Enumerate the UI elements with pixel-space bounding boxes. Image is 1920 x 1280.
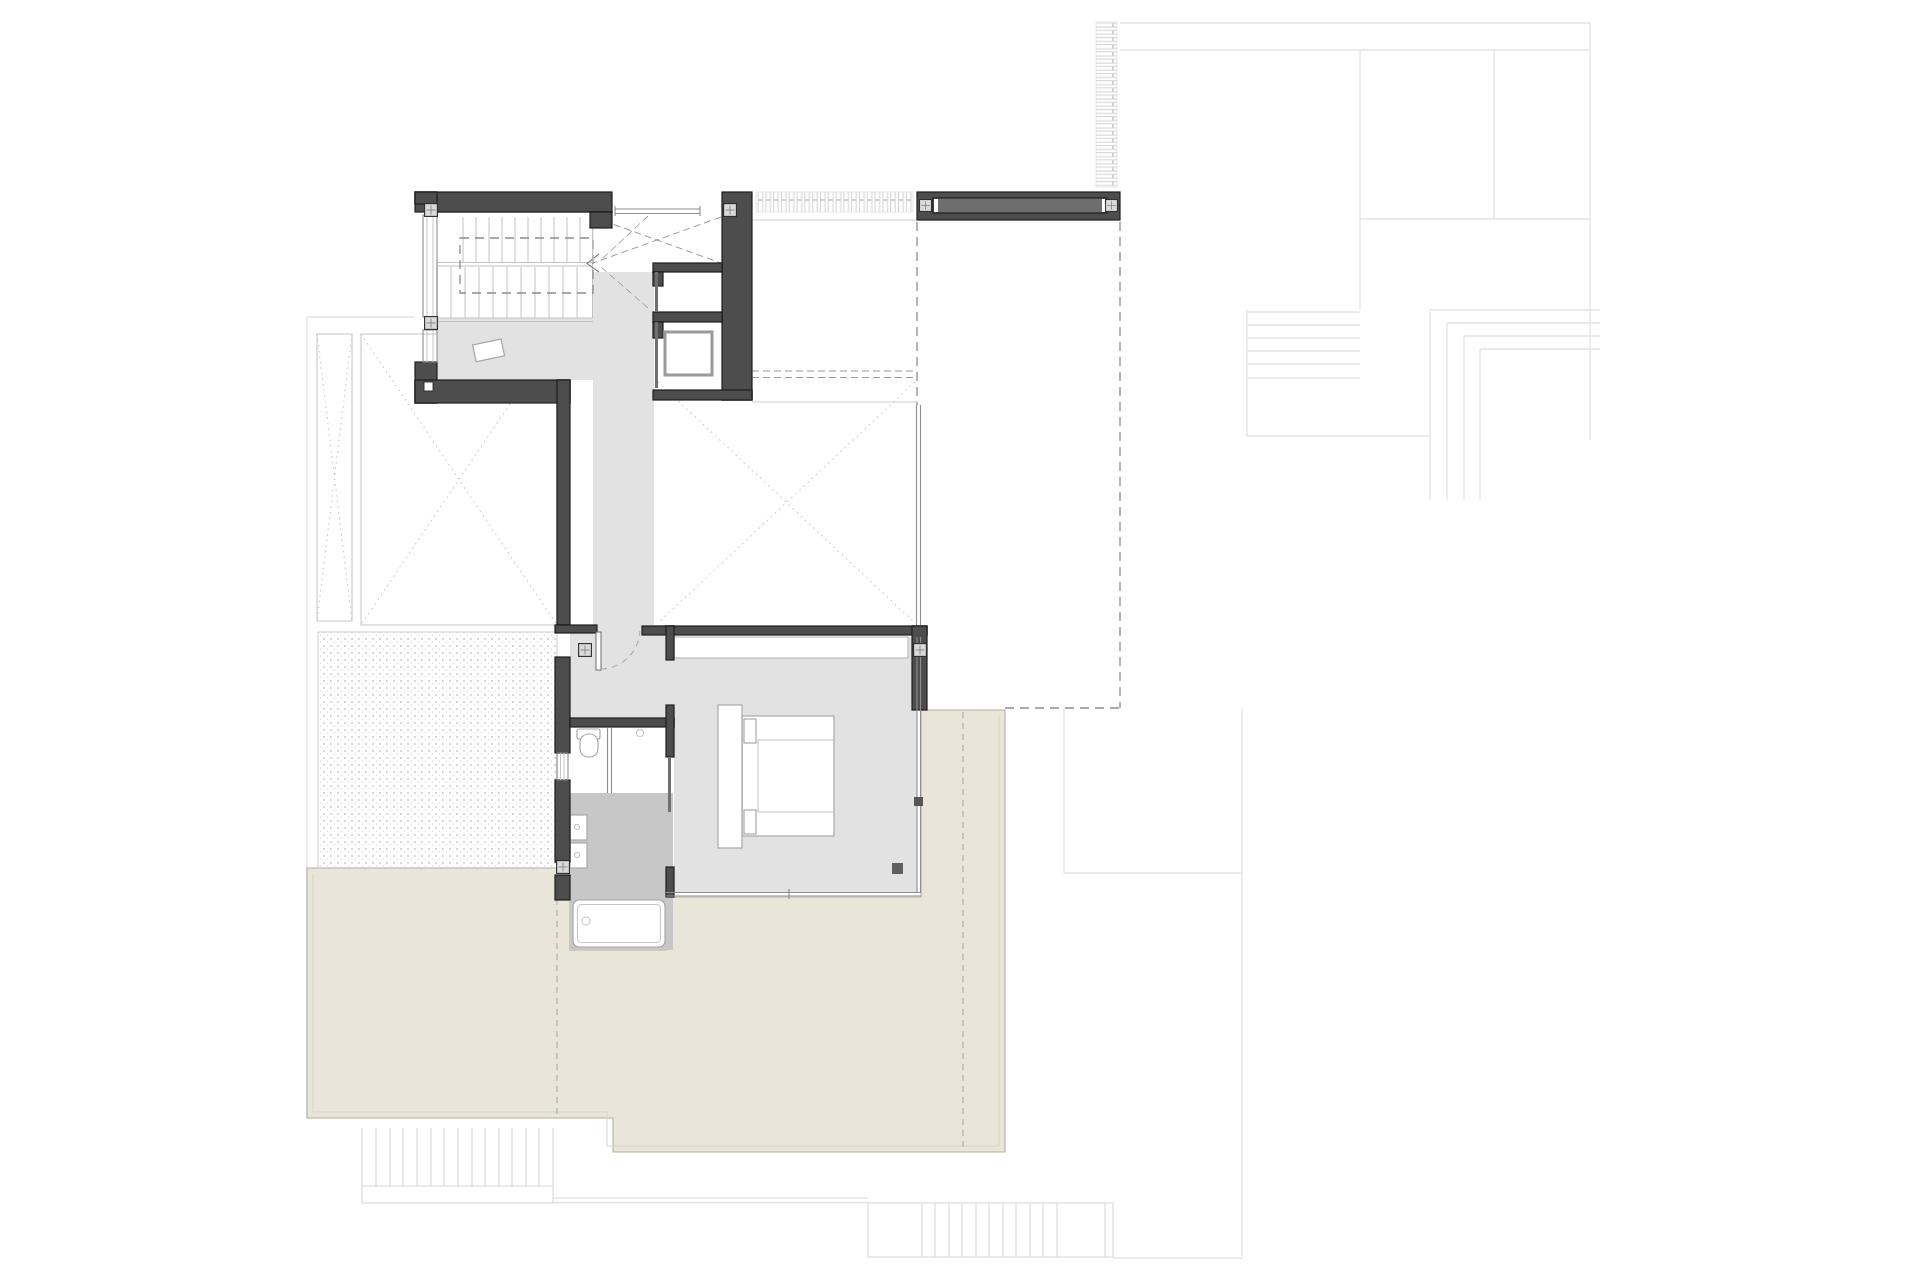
wall-niche	[424, 382, 433, 391]
door-head-wall	[555, 625, 597, 633]
floor-outlet	[892, 863, 903, 874]
corridor-west-wall	[557, 380, 570, 625]
stair-landing-strip	[362, 1186, 553, 1203]
east-core-wall	[722, 192, 752, 400]
wardrobe	[674, 637, 908, 658]
bathroom-east-wall	[666, 705, 674, 757]
entry-slat-strip	[1096, 22, 1117, 187]
bathroom-north-wall	[570, 718, 674, 727]
narrow-void-room	[317, 334, 352, 621]
hidden-beam-dashed	[752, 371, 917, 378]
underlay-lower-terrace	[1064, 708, 1242, 1258]
bed-headboard	[718, 705, 742, 848]
gravel-court	[318, 632, 557, 868]
hall-floor	[570, 625, 674, 718]
void-room-window	[917, 405, 921, 625]
lower-terrace-edge	[553, 1198, 868, 1203]
column-marker	[920, 200, 932, 212]
stair-north-window	[615, 206, 700, 216]
glazing-mullion	[914, 797, 923, 806]
underlay-steps-right	[1247, 312, 1360, 378]
column-marker	[425, 317, 438, 330]
gravel-stipple-area	[318, 632, 557, 868]
toilet	[577, 729, 600, 757]
column-marker	[724, 204, 737, 217]
bed-pillow	[744, 719, 756, 743]
skylight-shaft	[665, 332, 712, 375]
bedroom-north-wall	[642, 626, 927, 635]
pergola-slat-strip	[756, 192, 913, 212]
louver-strips	[756, 22, 1117, 212]
hidden-outline-dashed	[917, 222, 1120, 708]
bedroom-corner-column-wall	[912, 626, 927, 710]
bathroom-west-wall	[555, 657, 570, 753]
bed-pillow	[744, 810, 756, 834]
column-marker	[579, 644, 592, 657]
bathroom-window	[557, 753, 568, 780]
door-leaf	[596, 632, 601, 670]
lower-stair-box	[868, 1203, 1113, 1257]
column-marker	[557, 861, 570, 874]
stair-block-west-wall	[415, 192, 437, 204]
column-marker	[914, 644, 927, 657]
underlay-nested-corners	[1430, 310, 1600, 500]
void-over-living-room	[658, 371, 921, 625]
bed	[718, 705, 834, 848]
corridor-floor	[593, 272, 654, 625]
floor-plan-canvas	[0, 0, 1920, 1280]
stair-block-north-wall	[415, 192, 612, 212]
stair-upper-flight-treads	[463, 217, 580, 262]
stair-block-south-wall	[415, 380, 570, 403]
stair-west-window	[423, 215, 437, 317]
column-marker	[1106, 200, 1118, 212]
bathtub	[573, 900, 665, 947]
stair-landing-floor	[437, 318, 593, 380]
floor-plan-drawing	[0, 0, 1920, 1280]
terrace-stair-southwest	[362, 1128, 553, 1186]
column-marker	[425, 204, 438, 217]
